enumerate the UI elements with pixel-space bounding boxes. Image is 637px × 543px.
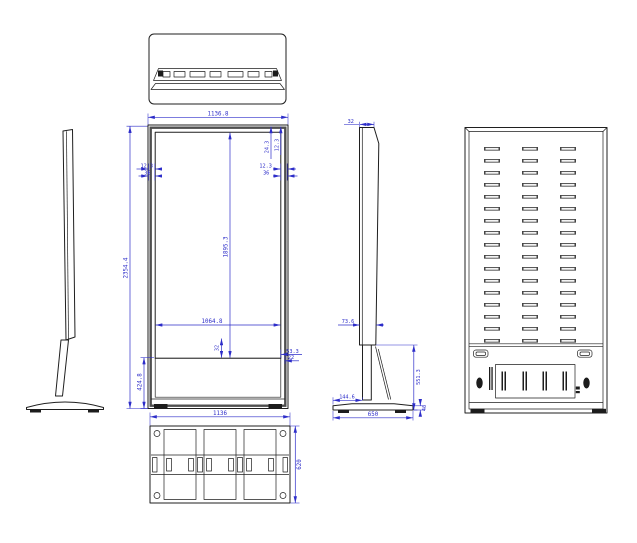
back-handle-slot xyxy=(580,352,590,355)
top-end-block xyxy=(158,71,163,77)
top-view xyxy=(149,34,286,104)
back-corner-bevel xyxy=(466,128,470,132)
front-bottom-panel xyxy=(155,358,281,397)
dim-label-bottom-depth: 620 xyxy=(297,459,303,470)
dim-label-screen-height: 1895.3 xyxy=(224,236,230,257)
back-oval-opening xyxy=(583,378,589,389)
side-foot xyxy=(395,410,406,413)
bottom-bracket xyxy=(283,458,288,473)
bottom-panel-section xyxy=(204,430,236,500)
dim-label-bezel-right-b: 36 xyxy=(263,171,269,177)
top-front-strip xyxy=(151,84,285,90)
plate-label-text xyxy=(526,372,528,391)
plate-label-text xyxy=(502,372,504,391)
front-foot xyxy=(269,404,283,409)
bottom-screw-hole xyxy=(154,431,160,437)
bottom-panel-section xyxy=(244,430,276,500)
back-switch-block xyxy=(576,387,580,390)
dim-label-top-offset-b: 12.3 xyxy=(274,139,280,152)
dim-label-bezel-left-a: 12.3 xyxy=(141,163,154,169)
dim-label-depth-top: 32 xyxy=(348,119,354,125)
dim-label-corner-b: 22 xyxy=(288,355,294,361)
bottom-bracket xyxy=(153,458,158,473)
side-foot xyxy=(338,410,349,413)
bottom-bracket xyxy=(269,459,274,472)
side-stand-strut xyxy=(378,349,391,400)
side-dimensions: 32 73.6 551.3 144.6 650 46 xyxy=(333,119,428,421)
profile-stand-leg xyxy=(56,340,69,396)
bottom-screw-hole xyxy=(280,431,286,437)
profile-foot xyxy=(30,410,41,413)
top-connector xyxy=(265,72,272,78)
top-view-outline xyxy=(149,34,286,104)
top-connector xyxy=(163,72,170,78)
bottom-bracket xyxy=(207,459,212,472)
back-oval-opening xyxy=(476,378,482,389)
top-connector xyxy=(228,72,243,78)
bottom-view xyxy=(150,426,290,503)
profile-panel-outline xyxy=(63,130,75,341)
technical-drawing-svg: 2354.4 1136.8 24.3 12.3 xyxy=(0,0,637,543)
dim-label-stand-height: 551.3 xyxy=(416,369,422,385)
bottom-bracket xyxy=(189,459,194,472)
profile-panel-face-line xyxy=(67,131,69,339)
plate-label-text xyxy=(505,372,507,391)
top-connector xyxy=(210,72,221,78)
dim-label-bezel-right-a: 12.3 xyxy=(259,163,272,169)
plate-label-text xyxy=(543,372,545,391)
top-connector xyxy=(190,72,205,78)
front-foot xyxy=(154,404,168,409)
dim-label-screen-width: 1064.8 xyxy=(202,319,223,325)
side-stand-strut xyxy=(376,347,389,400)
back-side-label-text xyxy=(491,367,492,390)
dim-label-base-depth: 650 xyxy=(368,412,379,418)
dim-label-corner-a: 53.3 xyxy=(286,349,299,355)
back-side-label-text xyxy=(489,367,490,390)
profile-base-plate xyxy=(27,402,104,410)
top-connector xyxy=(174,72,185,78)
left-profile-view xyxy=(27,130,104,413)
back-corner-bevel xyxy=(603,128,607,132)
dim-label-bottom-width: 1136 xyxy=(213,411,227,417)
bottom-dimensions: 1136 620 xyxy=(150,411,303,503)
bottom-panel-section xyxy=(164,430,196,500)
bottom-screw-hole xyxy=(154,493,160,499)
dim-label-overall-height: 2354.4 xyxy=(123,257,129,278)
dim-label-bottom-gap: 32 xyxy=(215,345,221,351)
bottom-bracket xyxy=(238,458,243,473)
back-handle-slot xyxy=(476,352,486,355)
side-view xyxy=(333,128,413,414)
back-view xyxy=(465,128,607,414)
dim-label-top-width: 1136.8 xyxy=(208,112,229,118)
back-switch-block xyxy=(576,391,580,393)
top-connector xyxy=(248,72,259,78)
dim-label-bezel-left-b: 36 xyxy=(144,171,150,177)
side-stand-column xyxy=(363,345,372,400)
side-base-plate xyxy=(333,404,413,410)
dim-label-foot-offset: 144.6 xyxy=(339,395,355,401)
dim-label-depth-body: 73.6 xyxy=(342,319,355,325)
profile-foot xyxy=(88,410,99,413)
dim-label-base-height: 424.8 xyxy=(138,373,144,391)
bottom-bracket xyxy=(229,459,234,472)
front-dimensions: 1136.8 24.3 12.3 12.3 36 12.3 36 1895.3 … xyxy=(137,112,303,409)
top-view-connector-band xyxy=(154,69,282,81)
bottom-screw-hole xyxy=(280,493,286,499)
plate-label-text xyxy=(546,372,548,391)
plate-label-text xyxy=(563,372,565,391)
dim-label-base-thickness: 46 xyxy=(422,405,428,411)
plate-label-text xyxy=(523,372,525,391)
plate-label-text xyxy=(566,372,568,391)
bottom-bracket xyxy=(198,458,203,473)
back-foot xyxy=(592,409,606,413)
bottom-outline xyxy=(150,426,290,503)
dim-label-top-offset-a: 24.3 xyxy=(264,141,270,154)
top-end-block xyxy=(273,71,278,77)
bottom-bracket xyxy=(247,459,252,472)
bottom-bracket xyxy=(167,459,172,472)
drawing-sheet: 2354.4 1136.8 24.3 12.3 xyxy=(0,0,637,543)
back-foot xyxy=(471,409,485,413)
